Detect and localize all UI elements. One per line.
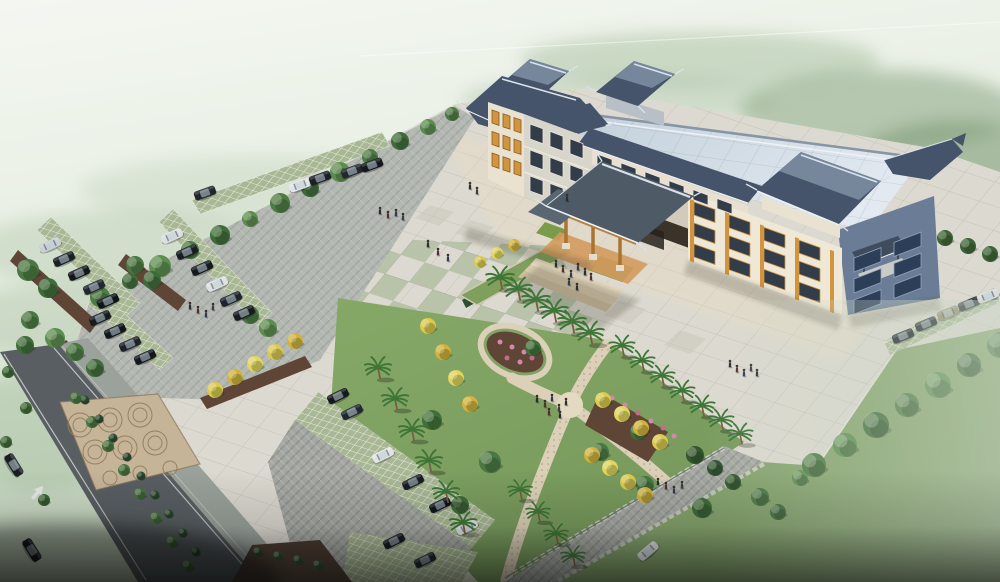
window	[514, 161, 521, 176]
architectural-rendering: Aerial architectural rendering of a Chin…	[0, 0, 1000, 582]
column-pedestal	[562, 243, 570, 249]
window	[492, 153, 499, 168]
window	[725, 212, 729, 275]
column-pedestal	[589, 254, 597, 260]
window	[492, 110, 499, 125]
window	[795, 237, 799, 300]
rendering-canvas: Aerial architectural rendering of a Chin…	[0, 0, 1000, 582]
window	[514, 118, 521, 133]
column-pedestal	[616, 265, 624, 271]
window	[514, 139, 521, 154]
window	[503, 135, 510, 150]
window	[492, 132, 499, 147]
window	[760, 224, 764, 287]
window	[503, 157, 510, 172]
window	[503, 114, 510, 129]
window	[690, 199, 694, 262]
